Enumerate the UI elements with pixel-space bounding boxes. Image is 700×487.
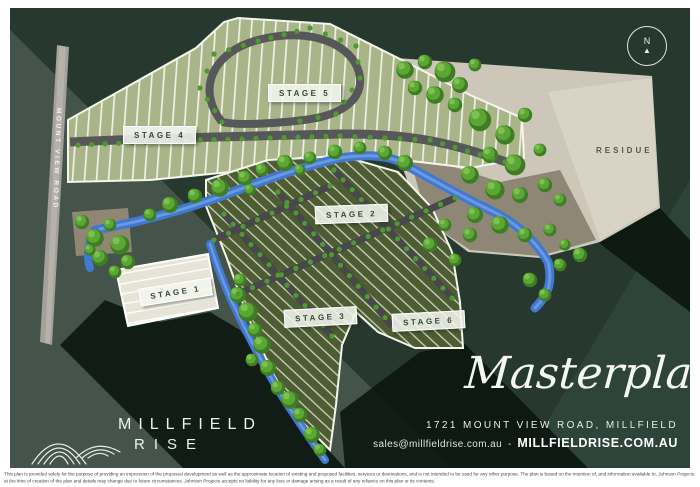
disclaimer-line2: and details may change due to future cir… (73, 479, 435, 484)
north-arrow: N ▲ (627, 26, 667, 66)
poster-canvas: STAGE 1 STAGE 2 STAGE 3 STAGE 4 STAGE 5 … (10, 8, 690, 468)
stage-5-label: STAGE 5 (268, 84, 341, 102)
separator-dash: - (508, 439, 511, 450)
disclaimer-text: This plan is provided solely for the pur… (4, 471, 699, 485)
stage-3-label: STAGE 3 (284, 306, 358, 328)
masterplan-poster: STAGE 1 STAGE 2 STAGE 3 STAGE 4 STAGE 5 … (0, 0, 700, 487)
website-text: MILLFIELDRISE.COM.AU (517, 436, 678, 450)
address-line: 1721 MOUNT VIEW ROAD, MILLFIELD (373, 420, 678, 431)
north-letter: N (644, 37, 651, 46)
north-arrow-icon: ▲ (643, 47, 651, 55)
logo-line2: RISE (134, 436, 262, 453)
millfield-rise-logo: MILLFIELD RISE (30, 412, 260, 468)
residue-label: RESIDUE (596, 146, 653, 155)
contact-block: 1721 MOUNT VIEW ROAD, MILLFIELD sales@mi… (373, 420, 678, 450)
email-text: sales@millfieldrise.com.au (373, 439, 502, 450)
hills-logo-icon (30, 412, 122, 468)
stage-4-label: STAGE 4 (123, 126, 196, 144)
masterplan-title: Masterplan (463, 348, 690, 401)
stage-2-label: STAGE 2 (315, 204, 389, 225)
stage-6-label: STAGE 6 (392, 310, 466, 332)
logo-line1: MILLFIELD (118, 416, 262, 434)
